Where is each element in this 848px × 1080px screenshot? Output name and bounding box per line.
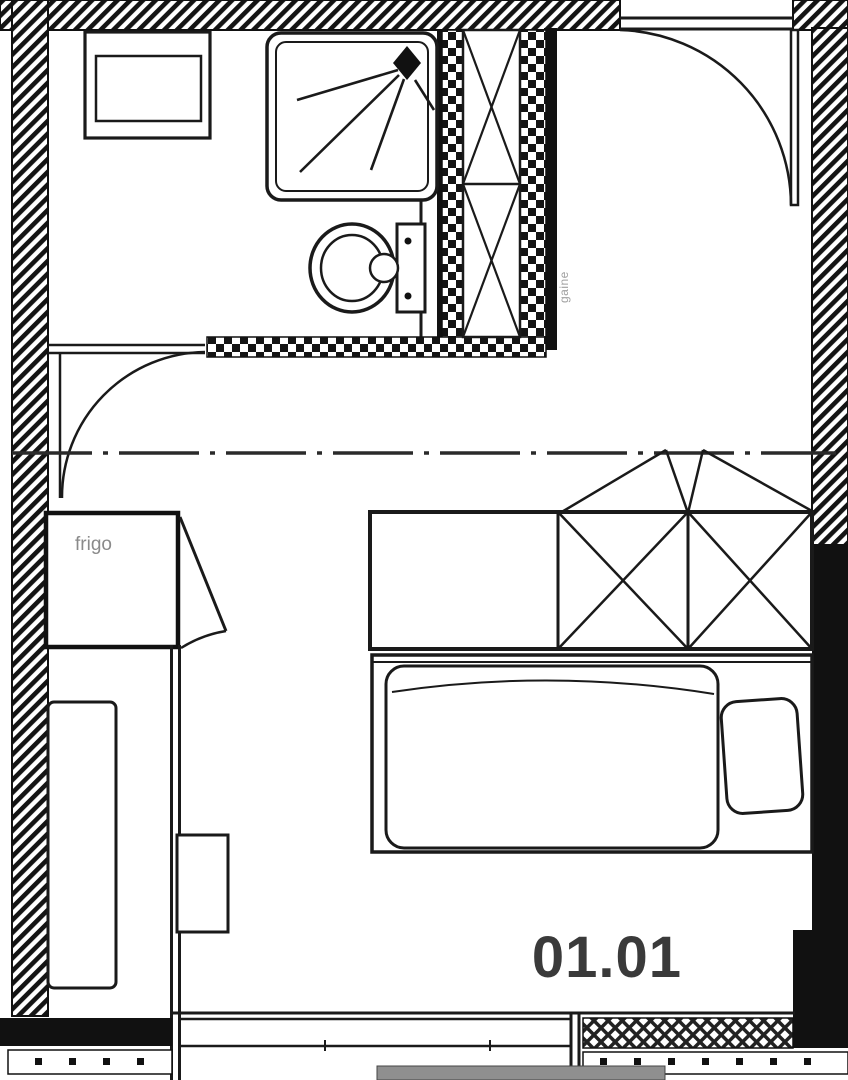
washbasin: [85, 32, 210, 138]
shower: [267, 33, 437, 200]
insulation-dot: [35, 1058, 42, 1065]
wardrobe-body: [370, 512, 812, 649]
floor-plan-page: gaine frigo: [0, 0, 848, 1080]
insulation-dot: [634, 1058, 641, 1065]
insulation-dot: [668, 1058, 675, 1065]
insulation-dot: [770, 1058, 777, 1065]
insulation-dot: [702, 1058, 709, 1065]
technical-shaft: [463, 30, 520, 337]
insulation-dot: [600, 1058, 607, 1065]
bottom-wall-left-solid: [0, 1018, 172, 1046]
wall-right-upper: [812, 28, 848, 545]
toilet-bolt-top: [405, 238, 412, 245]
wall-left: [12, 0, 48, 1016]
wall-corner-bottom-right: [793, 930, 848, 1048]
fridge: [46, 513, 178, 647]
duvet: [386, 666, 718, 848]
pillow: [720, 697, 804, 814]
bottom-wall-crosshatch: [583, 1018, 793, 1048]
balcony-edge: [377, 1066, 665, 1080]
wall-top-right-jamb: [793, 0, 848, 30]
insulation-strip-left: [8, 1050, 172, 1074]
insulation-dot: [804, 1058, 811, 1065]
toilet-bolt-bottom: [405, 293, 412, 300]
insulation-dot: [736, 1058, 743, 1065]
floor-plan: gaine frigo: [0, 0, 848, 1080]
insulation-dot: [103, 1058, 110, 1065]
entry-door-leaf: [791, 30, 798, 205]
desk: [48, 702, 116, 988]
toilet-tank: [397, 224, 425, 312]
wall-bathroom-bottom: [207, 337, 546, 357]
room-number-label: 01.01: [532, 925, 682, 990]
toilet-flush: [370, 254, 398, 282]
fridge-label: frigo: [75, 534, 112, 555]
insulation-dot: [137, 1058, 144, 1065]
wall-top: [0, 0, 620, 30]
duct-label: gaine: [557, 271, 571, 303]
toilet: [310, 224, 425, 312]
washbasin-basin: [96, 56, 201, 121]
shaft-wall-right: [520, 30, 546, 337]
shaft-wall-left: [442, 30, 463, 337]
bed: [372, 655, 812, 852]
chair: [177, 835, 228, 932]
insulation-dot: [69, 1058, 76, 1065]
